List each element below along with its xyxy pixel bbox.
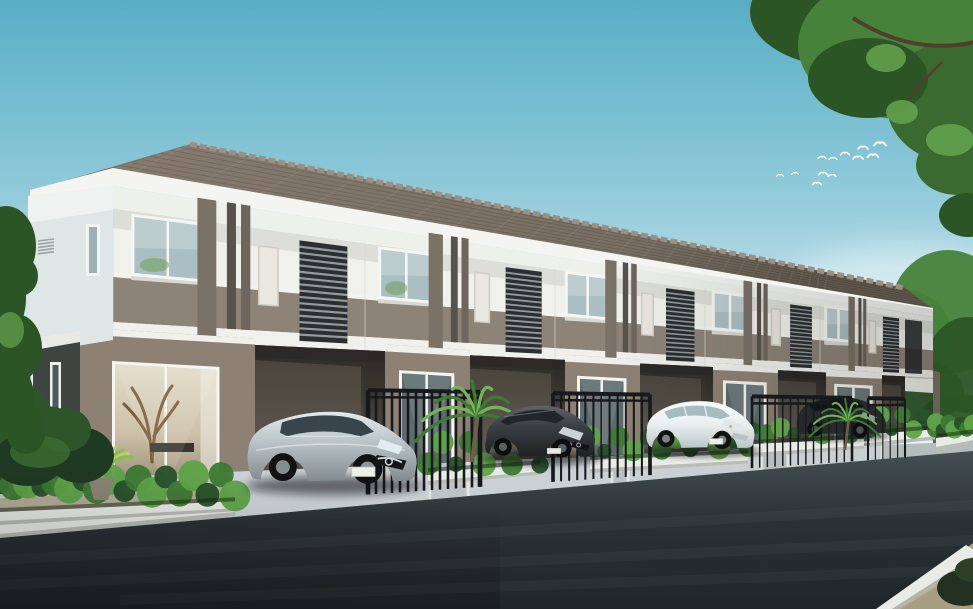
left-tree-foliage [6,406,46,454]
render-canvas [0,0,973,609]
hedge-clump [894,407,910,423]
license-plate [709,439,722,444]
license-plate [547,448,561,454]
matte-panel [259,246,278,306]
fence-top-rail [868,398,905,399]
facade-stripe [197,198,216,342]
wheel-rim [662,435,670,443]
leaf-cluster [926,124,973,156]
facade-stripe [227,202,236,329]
wheel-rim [499,443,507,451]
wheel-rim [856,426,864,434]
facade-stripe [451,236,458,342]
leaf-cluster [866,44,906,72]
hedge-clump [430,431,453,454]
hedge-clump [771,418,791,438]
facade-stripe [241,204,250,330]
turn-signal [729,425,732,428]
matte-panel [475,272,490,322]
side-window-glass [89,227,97,273]
facade-stripe [429,233,443,353]
left-tree-foliage [2,256,38,296]
window-plant [140,258,169,272]
townhouse-rendering [0,0,973,609]
window-plant [385,281,407,295]
leaf-cluster [886,100,918,124]
side-slit-glass [53,365,59,413]
facade-stripe [462,238,469,343]
road-vignette [0,470,500,609]
